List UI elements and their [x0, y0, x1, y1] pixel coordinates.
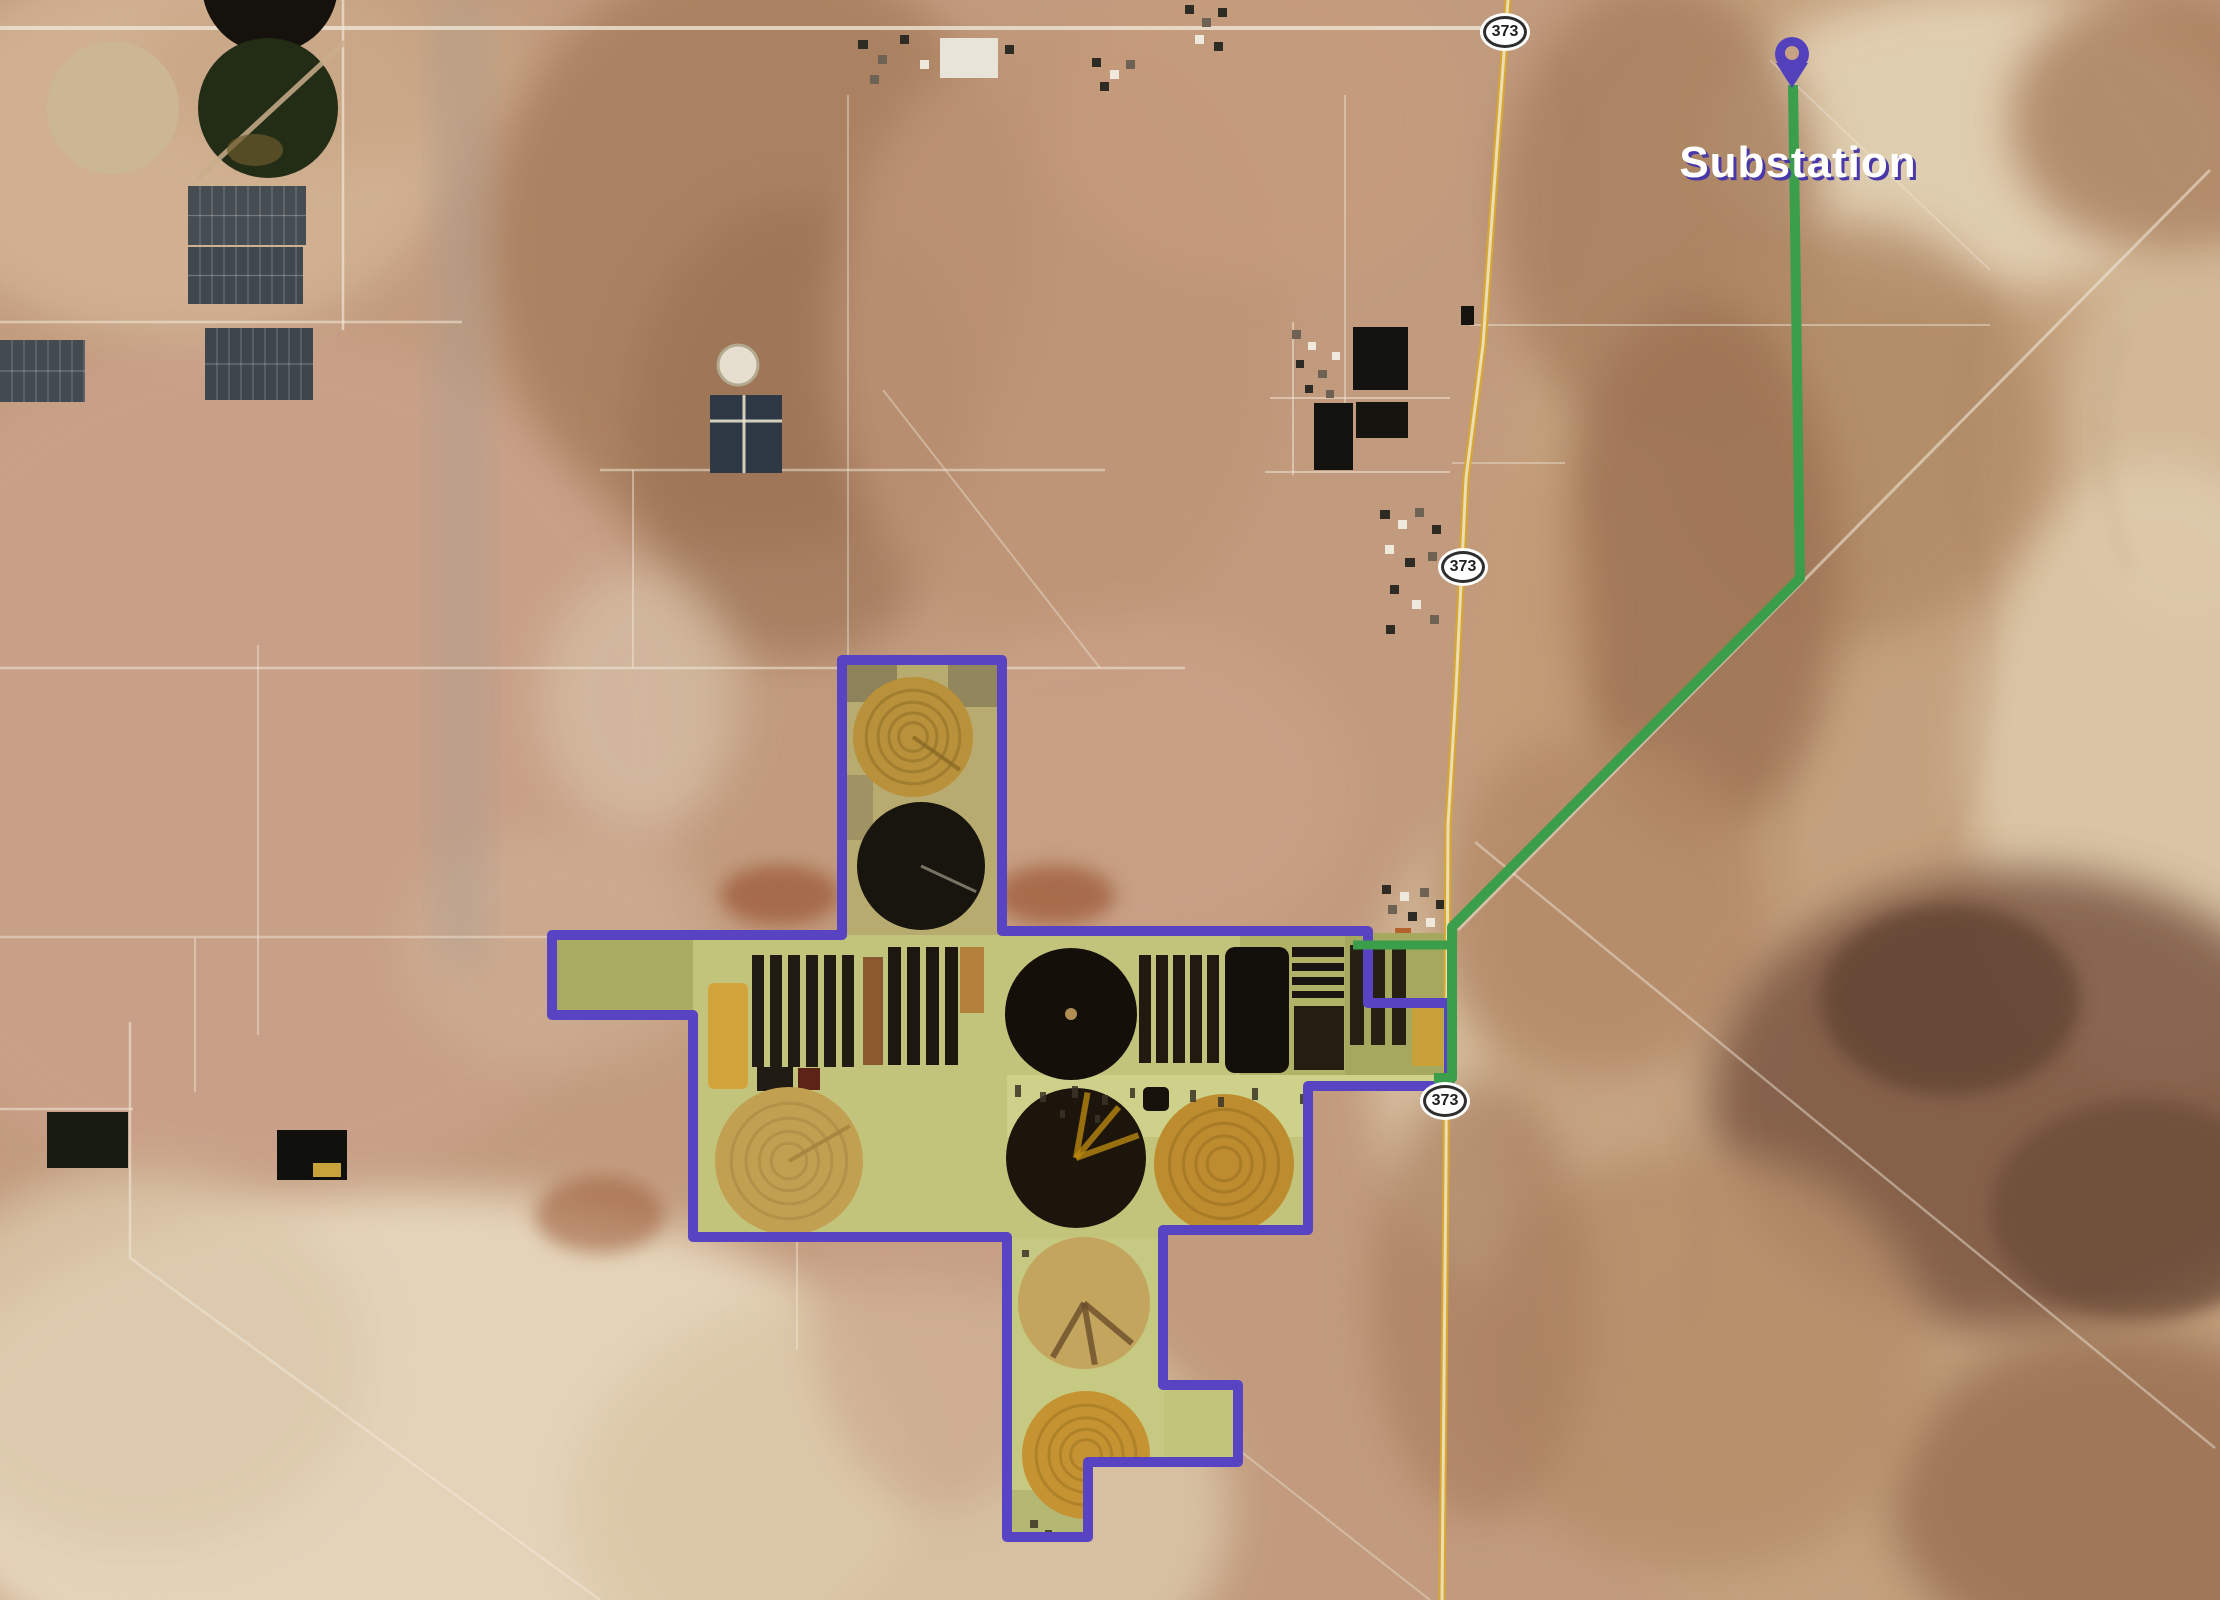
settlement-dot	[1296, 360, 1304, 368]
feedlot-strip	[907, 947, 920, 1065]
route-shield-top-text: 373	[1492, 23, 1519, 41]
settlement-dot	[1326, 390, 1334, 398]
settlement-dot	[1332, 352, 1340, 360]
feedlot-strip	[1156, 955, 1168, 1063]
settlement-dot	[1126, 60, 1135, 69]
building	[313, 1163, 341, 1177]
feedlot-strip	[788, 955, 800, 1067]
field-patch	[227, 134, 283, 166]
settlement-dot	[1185, 5, 1194, 14]
terrain-patch	[540, 570, 740, 830]
terrain-patch	[995, 865, 1115, 925]
settlement-dot	[858, 40, 868, 49]
settlement-dot	[1430, 615, 1439, 624]
satellite-map	[0, 0, 2220, 1600]
farm-structure	[960, 947, 984, 1013]
feedlot-strip	[1190, 955, 1202, 1063]
route-shield-bottom-text: 373	[1432, 1092, 1459, 1110]
farm-structure	[1143, 1087, 1169, 1111]
feedlot-strip	[1139, 955, 1151, 1063]
farm-structure	[1292, 991, 1344, 998]
feedlot-strip	[806, 955, 818, 1067]
settlement-dot	[1100, 82, 1109, 91]
settlement-dot	[1382, 885, 1391, 894]
map-canvas: Substation 373 373 373	[0, 0, 2220, 1600]
building	[47, 1112, 128, 1168]
terrain-patch	[1370, 1080, 1590, 1520]
farm-speck	[1072, 1086, 1078, 1098]
feedlot-strip	[1350, 945, 1364, 1045]
route-shield-middle: 373	[1441, 551, 1485, 583]
solar-array	[1314, 403, 1353, 470]
settlement-dot	[1214, 42, 1223, 51]
farm-speck	[1190, 1090, 1196, 1102]
feedlot-strip	[1371, 945, 1385, 1045]
farm-speck	[1015, 1085, 1021, 1097]
route-shield-middle-text: 373	[1450, 558, 1477, 576]
settlement-dot	[1412, 600, 1421, 609]
settlement-dot	[1110, 70, 1119, 79]
farm-speck	[1102, 1095, 1108, 1105]
settlement-dot	[1420, 888, 1429, 897]
farm-structure	[1225, 947, 1289, 1073]
feedlot-strip	[926, 947, 939, 1065]
substation-label: Substation	[1679, 138, 1916, 188]
settlement-dot	[1436, 900, 1445, 909]
settlement-dot	[920, 60, 929, 69]
farm-structure	[1294, 1006, 1344, 1070]
pivot-irrigation-circle	[1154, 1094, 1294, 1234]
pivot-center	[1065, 1008, 1077, 1020]
solar-array	[1353, 327, 1408, 390]
settlement-dot	[1432, 525, 1441, 534]
pin-hole	[1785, 46, 1799, 60]
farm-structure	[863, 957, 883, 1065]
feedlot-strip	[770, 955, 782, 1067]
settlement-dot	[1195, 35, 1204, 44]
settlement-dot	[1218, 8, 1227, 17]
farm-speck	[1060, 1110, 1065, 1118]
settlement-dot	[1405, 558, 1415, 567]
farm-structure	[1292, 977, 1344, 985]
settlement-dot	[1318, 370, 1327, 378]
route-shield-top: 373	[1483, 16, 1527, 48]
settlement-dot	[1390, 585, 1399, 594]
farm-field	[552, 935, 693, 1015]
settlement-dot	[1292, 330, 1301, 339]
feedlot-strip	[1207, 955, 1219, 1063]
settlement-dot	[1400, 892, 1409, 901]
solar-array	[1461, 306, 1474, 325]
settlement-dot	[1415, 508, 1424, 517]
farm-speck	[1130, 1088, 1135, 1098]
settlement-dot	[878, 55, 887, 64]
farm-speck	[1252, 1088, 1258, 1100]
terrain-patch	[1820, 905, 2080, 1095]
farm-structure	[1412, 1008, 1442, 1066]
feedlot-strip	[888, 947, 901, 1065]
farm-speck	[1030, 1520, 1038, 1528]
farm-structure	[708, 983, 748, 1089]
feedlot-strip	[1173, 955, 1185, 1063]
settlement-dot	[1202, 18, 1211, 27]
settlement-dot	[1380, 510, 1390, 519]
settlement-dot	[1005, 45, 1014, 54]
feedlot-strip	[945, 947, 958, 1065]
feedlot-strip	[842, 955, 854, 1067]
feedlot-strip	[752, 955, 764, 1067]
terrain-patch	[535, 1177, 665, 1253]
settlement-dot	[1386, 625, 1395, 634]
farm-speck	[1022, 1250, 1029, 1257]
settlement-dot	[870, 75, 879, 84]
terrain-patch	[720, 865, 840, 925]
route-shield-bottom: 373	[1423, 1085, 1467, 1117]
farm-structure	[798, 1068, 820, 1090]
farm-structure	[1292, 947, 1344, 957]
settlement-dot	[900, 35, 909, 44]
settlement-dot	[1426, 918, 1435, 927]
crop-circle	[47, 42, 179, 174]
settlement-dot	[1428, 552, 1437, 561]
farm-speck	[1040, 1092, 1046, 1102]
water-tank	[718, 345, 758, 385]
settlement-dot	[1305, 385, 1313, 393]
feedlot-strip	[1392, 945, 1406, 1045]
settlement-dot	[1308, 342, 1316, 350]
terrain-patch	[443, 0, 479, 960]
solar-array	[1356, 402, 1408, 438]
settlement-dot	[1385, 545, 1394, 554]
settlement-dot	[1408, 912, 1417, 921]
building	[940, 38, 998, 78]
settlement-dot	[1398, 520, 1407, 529]
farm-speck	[1095, 1115, 1100, 1123]
feedlot-strip	[824, 955, 836, 1067]
solar-array	[710, 395, 782, 473]
farm-structure	[1292, 963, 1344, 971]
farm-speck	[1218, 1097, 1224, 1107]
settlement-dot	[1388, 905, 1397, 914]
settlement-dot	[1092, 58, 1101, 67]
